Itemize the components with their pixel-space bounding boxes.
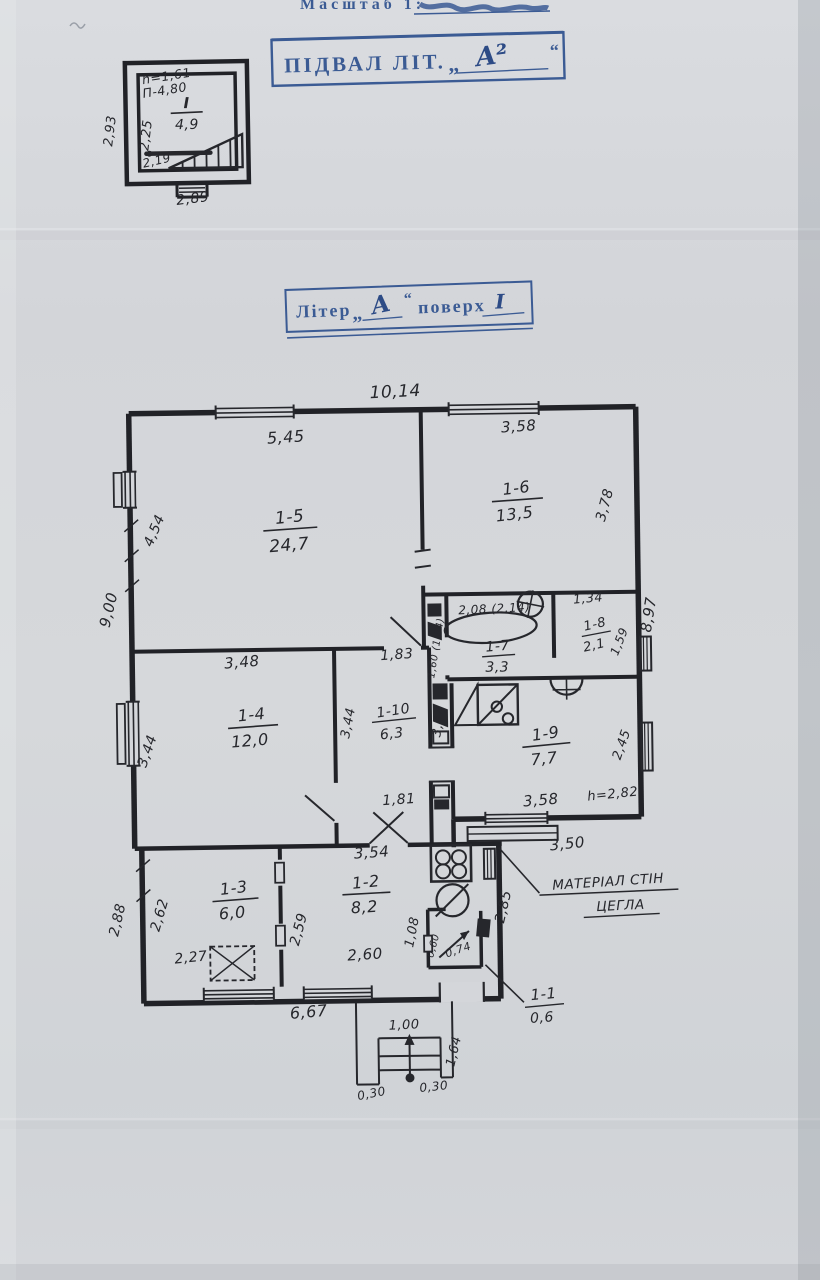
floor-plan-scan: Масштаб 1: ПІДВАЛ ЛІТ. „ А² “ h=1,61 П-4… xyxy=(0,0,820,1280)
room-1-2-area: 8,2 xyxy=(350,897,378,918)
dim-1-3-bottom: 2,27 xyxy=(174,948,209,967)
room-1-5-number: 1-5 xyxy=(274,506,305,529)
room-1-3-area: 6,0 xyxy=(218,902,246,923)
room-1-4-area: 12,0 xyxy=(230,730,269,752)
note-wall-material-line2: ЦЕГЛА xyxy=(596,897,645,915)
dim-1-10-top: 1,83 xyxy=(380,646,414,664)
floor-stamp-label: Літер xyxy=(296,300,352,322)
dim-bottom-mid: 3,54 xyxy=(353,842,390,862)
dim-porch-width: 1,00 xyxy=(388,1017,420,1033)
dim-porch-step-right: 0,30 xyxy=(419,1078,449,1095)
basement-stamp-label: ПІДВАЛ ЛІТ. xyxy=(284,49,446,77)
entrance-door-opening xyxy=(440,982,484,1003)
window-bottom-1-2 xyxy=(304,985,372,999)
room-1-3-number: 1-3 xyxy=(219,877,249,899)
basement-stamp-close-quote: “ xyxy=(550,40,560,60)
window-top-1-5 xyxy=(216,404,294,419)
room-1-7-number: 1-7 xyxy=(485,638,511,656)
dim-annex-bottom: 6,67 xyxy=(289,1001,328,1023)
basement-stamp-letter: А² xyxy=(472,39,510,73)
dim-1-4-top: 3,48 xyxy=(223,652,260,673)
basement-room-area: 4,9 xyxy=(175,117,199,133)
dim-overall-top: 10,14 xyxy=(369,381,421,403)
dim-bottom-right: 3,50 xyxy=(549,833,586,854)
window-bottom-1-3 xyxy=(204,987,274,1001)
room-1-7-area: 3,3 xyxy=(485,659,509,675)
room-1-2-number: 1-2 xyxy=(351,871,380,893)
room-1-9-area: 7,7 xyxy=(530,748,559,770)
dim-1-2-bottom: 2,60 xyxy=(347,944,384,964)
room-1-4-number: 1-4 xyxy=(237,704,266,726)
dim-1-6-top: 3,58 xyxy=(500,416,537,436)
dim-1-10-bottom: 1,81 xyxy=(382,791,416,809)
dim-1-9-bottom: 3,58 xyxy=(522,790,559,811)
basement-room-number: І xyxy=(183,94,189,112)
floor-stamp-open-quote: „ xyxy=(352,302,363,324)
floor-stamp-middle-word: поверх xyxy=(418,295,486,317)
scanned-floor-plan-page: Масштаб 1: ПІДВАЛ ЛІТ. „ А² “ h=1,61 П-4… xyxy=(0,0,820,1280)
floor-stamp-close-quote: “ xyxy=(404,291,413,308)
room-1-10-area: 6,3 xyxy=(379,725,404,744)
room-1-1-number: 1-1 xyxy=(530,984,557,1004)
room-1-5-area: 24,7 xyxy=(269,534,310,557)
paper-background xyxy=(0,0,820,1280)
floor-stamp-floor-number: І xyxy=(494,289,506,313)
room-1-1-area: 0,6 xyxy=(530,1009,555,1027)
dim-1-5-top: 5,45 xyxy=(266,426,305,447)
room-1-6-number: 1-6 xyxy=(501,477,531,499)
scale-label: Масштаб 1: xyxy=(300,0,425,13)
window-top-1-6 xyxy=(449,401,539,416)
room-1-9-number: 1-9 xyxy=(531,722,561,745)
dim-1-8-top: 1,34 xyxy=(573,589,604,606)
